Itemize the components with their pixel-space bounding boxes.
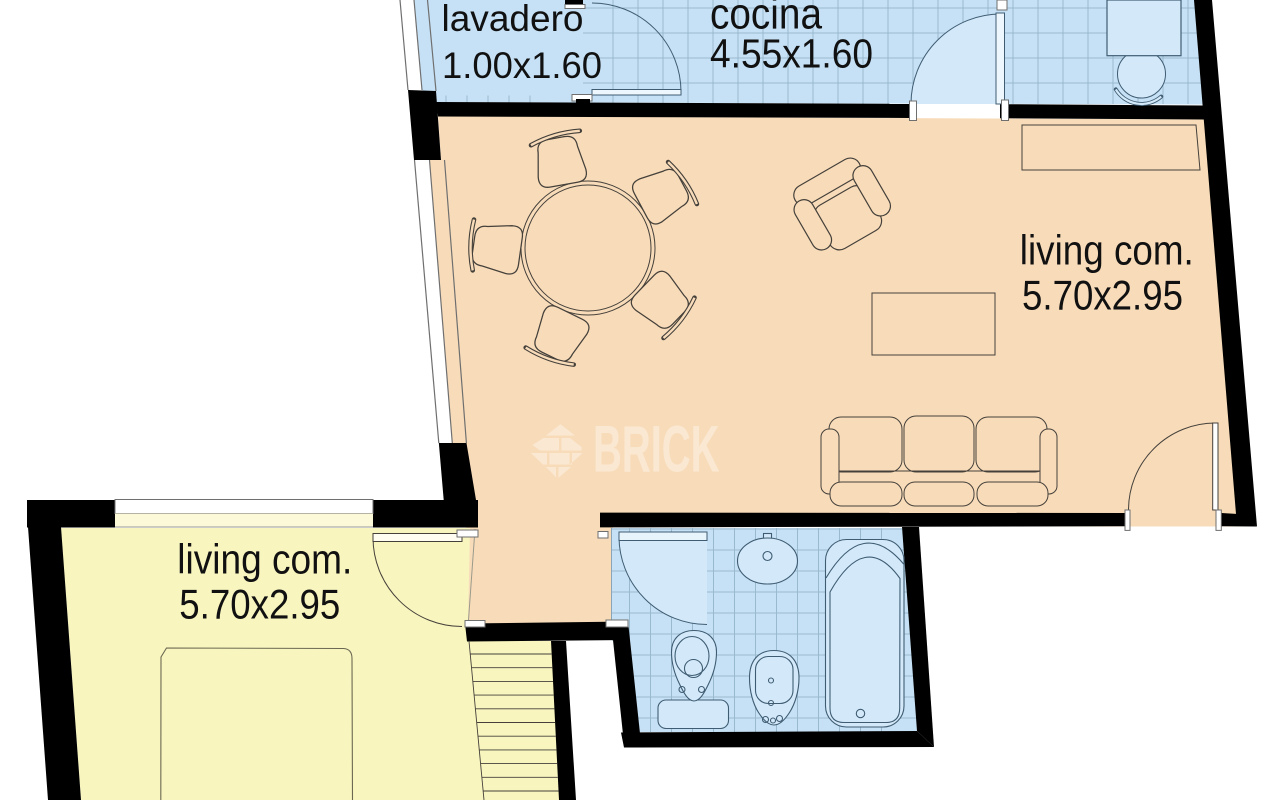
svg-text:BRICK: BRICK [593,412,720,486]
svg-text:1.00x1.60: 1.00x1.60 [442,45,602,86]
svg-text:5.70x2.95: 5.70x2.95 [179,581,340,628]
svg-text:living com.: living com. [177,536,352,583]
svg-text:4.55x1.60: 4.55x1.60 [710,31,873,77]
svg-text:5.70x2.95: 5.70x2.95 [1022,271,1183,318]
svg-text:lavadero: lavadero [442,0,584,39]
svg-text:living com.: living com. [1020,227,1194,274]
